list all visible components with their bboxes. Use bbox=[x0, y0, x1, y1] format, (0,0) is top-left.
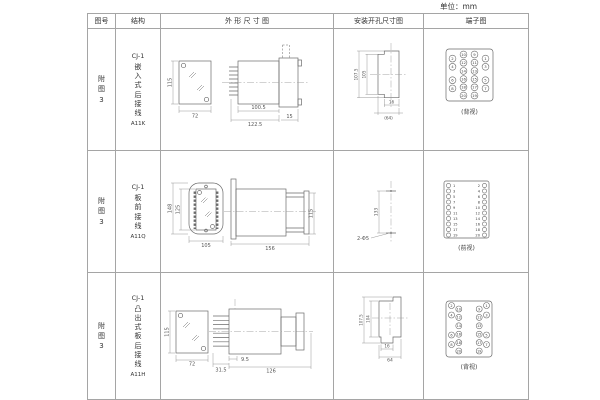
outline-cell-row1: 115 72 100.5 122.5 15 bbox=[161, 29, 334, 151]
svg-text:14: 14 bbox=[475, 217, 480, 221]
svg-text:19: 19 bbox=[477, 349, 481, 353]
dim-label: 31.5 bbox=[215, 368, 226, 374]
svg-text:11: 11 bbox=[477, 316, 481, 320]
figure-no-row1: 附 图 3 bbox=[98, 74, 105, 104]
svg-text:8: 8 bbox=[478, 200, 481, 204]
svg-text:18: 18 bbox=[461, 85, 466, 90]
mount-type-row3: 凸 出 式 板 后 接 线 bbox=[135, 305, 142, 369]
svg-text:4: 4 bbox=[478, 189, 481, 193]
view-label-row3: (背视) bbox=[461, 363, 478, 371]
svg-text:8: 8 bbox=[451, 86, 454, 91]
svg-text:19: 19 bbox=[453, 233, 458, 237]
install-drawing-row3: 107.5 104 16 64 bbox=[334, 273, 423, 398]
svg-text:18: 18 bbox=[475, 228, 480, 232]
svg-text:12: 12 bbox=[461, 60, 466, 65]
svg-text:5: 5 bbox=[485, 333, 487, 337]
svg-text:12: 12 bbox=[457, 316, 461, 320]
svg-text:9: 9 bbox=[453, 206, 456, 210]
svg-text:17: 17 bbox=[472, 85, 477, 90]
dim-label: 105 bbox=[361, 70, 366, 78]
svg-text:15: 15 bbox=[477, 332, 481, 336]
dim-label: 64 bbox=[387, 358, 393, 364]
svg-text:16: 16 bbox=[457, 332, 461, 336]
svg-text:13: 13 bbox=[477, 324, 481, 328]
svg-text:3: 3 bbox=[485, 313, 487, 317]
svg-text:13: 13 bbox=[472, 68, 477, 73]
svg-text:2: 2 bbox=[450, 304, 452, 308]
outline-drawing-row3: 115 72 9.5 31.5 126 bbox=[161, 273, 333, 398]
model-code-row2: A11Q bbox=[130, 234, 145, 240]
mount-type-row2: 板 前 接 线 bbox=[135, 194, 142, 230]
svg-text:9: 9 bbox=[473, 52, 476, 57]
model-label-row2: CJ-1 bbox=[132, 183, 145, 191]
svg-text:2: 2 bbox=[451, 56, 454, 61]
outline-drawing-row2: 148 125 105 156 115 bbox=[161, 151, 333, 272]
dim-label: 107.5 bbox=[358, 314, 363, 326]
svg-text:2: 2 bbox=[478, 184, 480, 188]
svg-text:3: 3 bbox=[453, 189, 455, 193]
dim-label: 15 bbox=[286, 114, 292, 120]
dim-label: 104 bbox=[365, 315, 370, 323]
model-label-row1: CJ-1 bbox=[132, 52, 145, 60]
dim-label: 72 bbox=[192, 114, 198, 120]
svg-text:5: 5 bbox=[453, 195, 455, 199]
header-terminal-diagram: 端子图 bbox=[424, 14, 528, 29]
model-code-row3: A11H bbox=[131, 372, 146, 378]
terminal-cell-row3: 2468101214161820911131517191357 (背视) bbox=[424, 273, 528, 399]
figure-no-row2: 附 图 3 bbox=[98, 196, 105, 226]
svg-text:9: 9 bbox=[478, 307, 480, 311]
structure-cell-row2: CJ-1 板 前 接 线 A11Q bbox=[116, 151, 161, 273]
svg-text:7: 7 bbox=[485, 343, 487, 347]
terminal-diagram-row1: 2468101214161820911131517191357 (背视) bbox=[424, 29, 527, 150]
svg-text:7: 7 bbox=[484, 86, 487, 91]
svg-text:10: 10 bbox=[461, 52, 466, 57]
outline-cell-row2: 148 125 105 156 115 bbox=[161, 151, 334, 273]
model-label-row3: CJ-1 bbox=[132, 294, 145, 302]
svg-text:14: 14 bbox=[457, 324, 462, 328]
svg-text:11: 11 bbox=[453, 211, 458, 215]
structure-cell-row3: CJ-1 凸 出 式 板 后 接 线 A11H bbox=[116, 273, 161, 399]
install-cell-row3: 107.5 104 16 64 bbox=[334, 273, 424, 399]
dim-label: 148 bbox=[168, 204, 174, 214]
svg-text:20: 20 bbox=[457, 349, 461, 353]
dim-label: 107.5 bbox=[353, 68, 358, 80]
svg-text:17: 17 bbox=[477, 341, 481, 345]
svg-text:16: 16 bbox=[461, 76, 466, 81]
svg-text:20: 20 bbox=[461, 93, 466, 98]
figure-no-cell-row3: 附 图 3 bbox=[88, 273, 116, 399]
svg-text:20: 20 bbox=[475, 233, 480, 237]
dim-label: 156 bbox=[265, 246, 275, 252]
figure-no-cell-row1: 附 图 3 bbox=[88, 29, 116, 151]
svg-text:17: 17 bbox=[453, 228, 458, 232]
dim-label: 115 bbox=[165, 327, 171, 337]
svg-text:15: 15 bbox=[472, 76, 477, 81]
dim-label: 115 bbox=[309, 209, 315, 219]
header-structure: 结构 bbox=[116, 14, 161, 29]
svg-text:4: 4 bbox=[450, 313, 453, 317]
terminal-cell-row2: 1234567891011121314151617181920 (前视) bbox=[424, 151, 528, 273]
dim-label: 16 bbox=[389, 100, 395, 105]
svg-text:3: 3 bbox=[484, 64, 487, 69]
svg-text:15: 15 bbox=[453, 222, 458, 226]
install-drawing-row2: 133 2-Φ5 bbox=[334, 151, 423, 272]
unit-label: 单位：mm bbox=[440, 1, 477, 12]
spec-table: 图号 结构 外 形 尺 寸 图 安装开孔尺寸图 端子图 附 图 3 CJ-1 嵌… bbox=[87, 13, 529, 400]
structure-cell-row1: CJ-1 嵌 入 式 后 接 线 A11K bbox=[116, 29, 161, 151]
svg-text:11: 11 bbox=[472, 60, 477, 65]
svg-text:6: 6 bbox=[451, 78, 454, 83]
terminal-diagram-row3: 2468101214161820911131517191357 (背视) bbox=[424, 273, 527, 398]
install-cell-row2: 133 2-Φ5 bbox=[334, 151, 424, 273]
svg-text:8: 8 bbox=[450, 343, 452, 347]
dim-label: 122.5 bbox=[248, 122, 262, 128]
terminal-cell-row1: 2468101214161820911131517191357 (背视) bbox=[424, 29, 528, 151]
svg-text:1: 1 bbox=[484, 56, 487, 61]
svg-text:10: 10 bbox=[457, 307, 461, 311]
dim-label: 9.5 bbox=[241, 357, 249, 363]
figure-no-cell-row2: 附 图 3 bbox=[88, 151, 116, 273]
svg-text:5: 5 bbox=[484, 78, 487, 83]
dim-label: 133 bbox=[374, 208, 380, 217]
install-cell-row1: 107.5 105 16 (64) bbox=[334, 29, 424, 151]
hole-spec-label: 2-Φ5 bbox=[357, 236, 369, 242]
dim-label: (64) bbox=[384, 116, 393, 121]
dim-label: 16 bbox=[384, 344, 390, 349]
svg-text:12: 12 bbox=[475, 211, 480, 215]
svg-text:6: 6 bbox=[478, 195, 481, 199]
outline-cell-row3: 115 72 9.5 31.5 126 bbox=[161, 273, 334, 399]
svg-text:10: 10 bbox=[475, 206, 480, 210]
dim-label: 125 bbox=[176, 205, 182, 215]
figure-no-row3: 附 图 3 bbox=[98, 321, 105, 351]
svg-text:1: 1 bbox=[485, 304, 487, 308]
svg-text:6: 6 bbox=[450, 333, 452, 337]
svg-text:19: 19 bbox=[472, 93, 477, 98]
dim-label: 126 bbox=[266, 369, 276, 375]
terminal-diagram-row2: 1234567891011121314151617181920 (前视) bbox=[424, 151, 527, 272]
dim-label: 115 bbox=[168, 78, 174, 88]
header-figure-no: 图号 bbox=[88, 14, 116, 29]
svg-text:16: 16 bbox=[475, 222, 480, 226]
model-code-row1: A11K bbox=[131, 121, 145, 127]
svg-text:4: 4 bbox=[451, 64, 454, 69]
view-label-row2: (前视) bbox=[458, 244, 475, 252]
svg-text:18: 18 bbox=[457, 341, 461, 345]
outline-drawing-row1: 115 72 100.5 122.5 15 bbox=[161, 29, 333, 150]
install-drawing-row1: 107.5 105 16 (64) bbox=[334, 29, 423, 150]
dim-label: 100.5 bbox=[251, 105, 265, 111]
manual-page: 单位：mm 图号 结构 外 形 尺 寸 图 安装开孔尺寸图 端子图 附 图 3 … bbox=[0, 0, 600, 400]
dim-label: 72 bbox=[189, 362, 195, 368]
header-outline-dims: 外 形 尺 寸 图 bbox=[161, 14, 334, 29]
svg-text:1: 1 bbox=[453, 184, 455, 188]
view-label-row1: (背视) bbox=[461, 108, 478, 116]
svg-text:7: 7 bbox=[453, 200, 455, 204]
header-install-dims: 安装开孔尺寸图 bbox=[334, 14, 424, 29]
svg-text:13: 13 bbox=[453, 217, 458, 221]
svg-text:14: 14 bbox=[461, 68, 466, 73]
dim-label: 105 bbox=[201, 243, 211, 249]
mount-type-row1: 嵌 入 式 后 接 线 bbox=[135, 63, 142, 118]
